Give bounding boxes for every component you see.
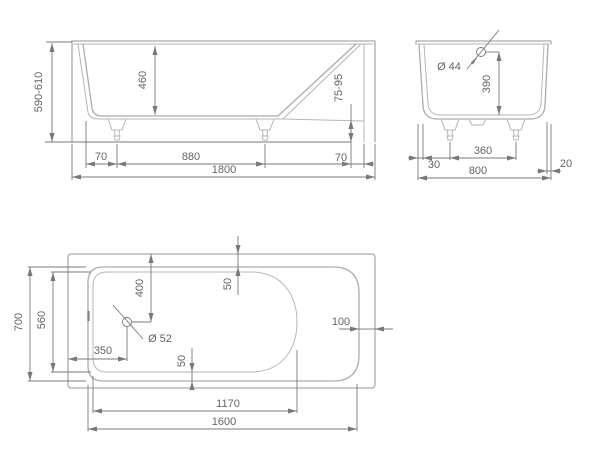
dim-side-total-length: 1800 (212, 164, 236, 176)
plan-outer-frame (68, 254, 375, 388)
dim-side-inner-depth: 460 (137, 71, 149, 89)
dim-plan-rim-top: 50 (222, 278, 234, 290)
dim-side-left-offset: 70 (95, 151, 107, 163)
ext-lines-side-chain (86, 121, 364, 168)
plan-view-dimensions: 700 560 400 50 Ø 52 350 50 (13, 236, 393, 431)
dim-side-height-range: 590-610 (33, 72, 45, 112)
dim-end-total-width: 800 (469, 165, 487, 177)
dim-end-rim-overhang: 20 (560, 158, 572, 170)
dim-end-overflow-height: 390 (481, 75, 493, 93)
dim-plan-drain-from-left: 350 (94, 345, 112, 357)
side-view-outline (72, 41, 375, 142)
dim-plan-rim-right: 100 (332, 316, 350, 328)
dim-plan-floor-length: 1170 (216, 398, 240, 410)
side-foot-right (256, 119, 274, 140)
end-foot-left (441, 119, 459, 140)
bathtub-technical-drawing: 590-610 460 75-95 70 880 70 1800 (0, 0, 600, 458)
dim-plan-rim-bottom: 50 (176, 355, 188, 367)
side-foot-left (108, 119, 126, 140)
plan-floor-outline (93, 272, 297, 372)
side-floor-under-line (99, 119, 364, 121)
overflow-leader-arrow (471, 57, 478, 65)
drawing-sheet: 590-610 460 75-95 70 880 70 1800 (0, 0, 600, 458)
end-view: Ø 44 390 30 360 20 800 (408, 30, 572, 180)
dim-plan-drain-diameter: Ø 52 (148, 333, 172, 345)
dim-plan-drain-from-top: 400 (134, 279, 146, 297)
drain-hole-circle (123, 318, 132, 327)
ext-lines-560 (51, 272, 91, 372)
plan-view-outline (68, 254, 375, 388)
dim-end-feet-spacing: 360 (474, 145, 492, 157)
side-view: 590-610 460 75-95 70 880 70 1800 (33, 41, 375, 180)
end-foot-right (507, 119, 525, 140)
side-view-dimensions: 590-610 460 75-95 70 880 70 1800 (33, 42, 375, 180)
dim-end-left-offset: 30 (428, 159, 440, 171)
dim-side-feet-height: 75-95 (333, 74, 345, 102)
side-backrest-outer (283, 44, 361, 119)
dim-side-feet-spacing: 880 (182, 151, 200, 163)
dim-end-overflow-diameter: Ø 44 (437, 61, 461, 73)
side-left-wall-inner (83, 44, 102, 116)
end-drain-notch (469, 119, 486, 125)
dim-plan-total-width: 700 (13, 313, 25, 331)
dim-plan-total-length: 1600 (212, 416, 236, 428)
dim-plan-floor-width: 560 (36, 311, 48, 329)
plan-view: 700 560 400 50 Ø 52 350 50 (13, 236, 393, 431)
dim-side-right-offset: 70 (335, 152, 347, 164)
